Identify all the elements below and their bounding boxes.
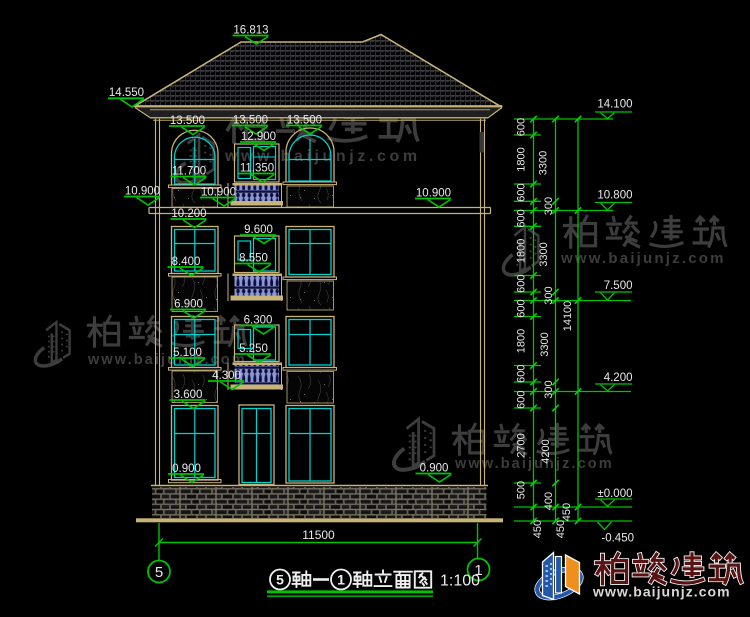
svg-text:www.baijunjz.com: www.baijunjz.com bbox=[87, 352, 247, 368]
svg-text:3.600: 3.600 bbox=[174, 389, 203, 401]
svg-text:13.500: 13.500 bbox=[287, 114, 322, 126]
svg-text:13.500: 13.500 bbox=[170, 115, 205, 127]
svg-text:300: 300 bbox=[543, 286, 555, 304]
svg-text:10.900: 10.900 bbox=[416, 187, 451, 199]
svg-text:300: 300 bbox=[543, 380, 555, 398]
svg-text:1: 1 bbox=[337, 572, 345, 588]
svg-text:-0.450: -0.450 bbox=[601, 533, 634, 545]
svg-text:600: 600 bbox=[516, 365, 528, 383]
svg-text:10.900: 10.900 bbox=[201, 186, 236, 198]
svg-text:600: 600 bbox=[516, 118, 528, 136]
svg-text:9.600: 9.600 bbox=[244, 224, 273, 236]
svg-text:8.550: 8.550 bbox=[239, 252, 268, 264]
svg-text:11.700: 11.700 bbox=[172, 165, 206, 177]
svg-text:www.baijunjz.com: www.baijunjz.com bbox=[560, 250, 726, 267]
svg-text:5.100: 5.100 bbox=[173, 347, 202, 359]
svg-text:11.350: 11.350 bbox=[240, 162, 274, 174]
svg-text:7.500: 7.500 bbox=[604, 280, 633, 292]
svg-text:14.550: 14.550 bbox=[109, 87, 144, 99]
svg-text:450: 450 bbox=[555, 520, 567, 538]
svg-text:600: 600 bbox=[516, 299, 528, 317]
svg-text:3300: 3300 bbox=[538, 151, 550, 175]
svg-text:4.300: 4.300 bbox=[212, 370, 241, 382]
svg-text:5: 5 bbox=[276, 572, 284, 588]
svg-text:13.500: 13.500 bbox=[233, 114, 268, 126]
svg-text:6.900: 6.900 bbox=[174, 298, 203, 310]
svg-text:2700: 2700 bbox=[516, 433, 528, 457]
svg-text:16.813: 16.813 bbox=[233, 24, 268, 36]
svg-text:1800: 1800 bbox=[516, 329, 528, 353]
svg-text:10.200: 10.200 bbox=[171, 208, 206, 220]
svg-text:10.800: 10.800 bbox=[597, 190, 632, 202]
svg-text:1:100: 1:100 bbox=[440, 573, 480, 590]
svg-text:14.100: 14.100 bbox=[597, 99, 632, 111]
svg-text:5.250: 5.250 bbox=[239, 343, 268, 355]
svg-text:8.400: 8.400 bbox=[172, 256, 201, 268]
svg-text:1800: 1800 bbox=[516, 239, 528, 263]
svg-text:3300: 3300 bbox=[539, 332, 551, 356]
svg-text:1800: 1800 bbox=[516, 147, 528, 171]
svg-text:600: 600 bbox=[516, 391, 528, 409]
svg-text:300: 300 bbox=[543, 197, 555, 215]
svg-text:450: 450 bbox=[532, 520, 544, 538]
svg-text:14100: 14100 bbox=[562, 301, 574, 332]
svg-text:400: 400 bbox=[543, 492, 555, 510]
svg-text:600: 600 bbox=[516, 183, 528, 201]
svg-text:6.300: 6.300 bbox=[244, 314, 273, 326]
svg-text:5: 5 bbox=[155, 564, 163, 581]
svg-text:10.900: 10.900 bbox=[125, 185, 160, 197]
svg-text:3300: 3300 bbox=[538, 242, 550, 266]
svg-text:±0.000: ±0.000 bbox=[597, 488, 632, 500]
svg-text:11500: 11500 bbox=[302, 528, 335, 542]
svg-text:0.900: 0.900 bbox=[172, 463, 201, 475]
svg-text:450: 450 bbox=[561, 503, 573, 521]
svg-text:4.200: 4.200 bbox=[604, 372, 633, 384]
svg-text:www.baijunjz.com: www.baijunjz.com bbox=[592, 584, 731, 600]
svg-text:4200: 4200 bbox=[540, 439, 552, 463]
svg-text:600: 600 bbox=[516, 275, 528, 293]
svg-text:500: 500 bbox=[516, 481, 528, 499]
svg-text:0.900: 0.900 bbox=[420, 462, 449, 474]
svg-text:12.900: 12.900 bbox=[241, 131, 276, 143]
svg-text:600: 600 bbox=[516, 209, 528, 227]
